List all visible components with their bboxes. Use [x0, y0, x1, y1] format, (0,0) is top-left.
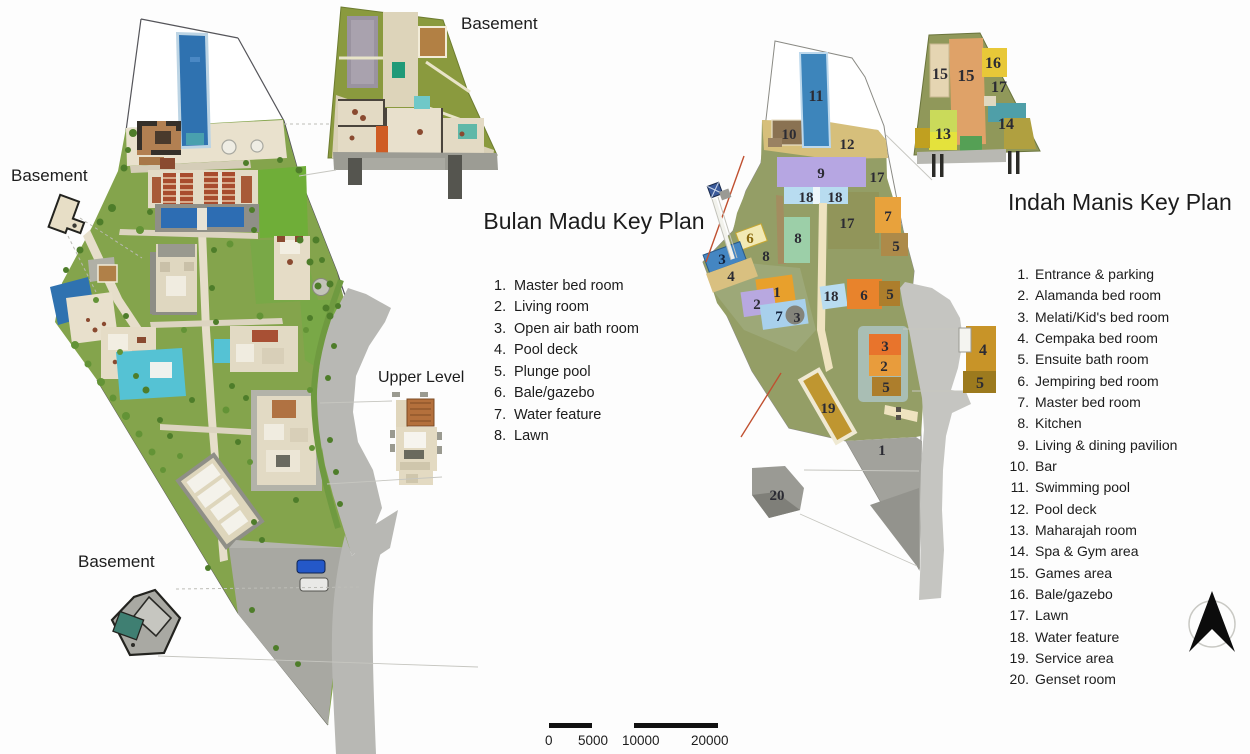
- svg-text:17: 17: [991, 79, 1007, 96]
- svg-text:4: 4: [979, 342, 987, 359]
- svg-text:Service area: Service area: [1035, 650, 1114, 666]
- svg-text:Alamanda bed room: Alamanda bed room: [1035, 287, 1161, 303]
- svg-text:2.: 2.: [494, 299, 506, 315]
- svg-text:11: 11: [808, 88, 823, 105]
- svg-text:Bar: Bar: [1035, 458, 1057, 474]
- svg-text:Bale/gazebo: Bale/gazebo: [1035, 586, 1113, 602]
- svg-text:10000: 10000: [622, 733, 660, 748]
- svg-text:7: 7: [884, 209, 892, 225]
- svg-text:16.: 16.: [1010, 586, 1029, 602]
- svg-text:Swimming pool: Swimming pool: [1035, 479, 1130, 495]
- svg-text:7: 7: [775, 309, 783, 325]
- svg-text:Pool deck: Pool deck: [1035, 501, 1097, 517]
- svg-text:Genset room: Genset room: [1035, 671, 1116, 687]
- svg-text:Lawn: Lawn: [1035, 607, 1068, 623]
- svg-text:1: 1: [878, 443, 886, 459]
- svg-text:13.: 13.: [1010, 522, 1029, 538]
- svg-text:Entrance & parking: Entrance & parking: [1035, 266, 1154, 282]
- svg-text:8.: 8.: [494, 428, 506, 444]
- svg-text:15: 15: [958, 66, 975, 85]
- svg-text:3: 3: [881, 339, 889, 355]
- svg-text:15: 15: [932, 66, 948, 83]
- svg-text:Melati/Kid's bed room: Melati/Kid's bed room: [1035, 309, 1169, 325]
- svg-text:Upper Level: Upper Level: [378, 369, 464, 386]
- svg-text:5: 5: [976, 375, 984, 392]
- svg-text:5: 5: [886, 287, 894, 303]
- svg-text:Games area: Games area: [1035, 565, 1112, 581]
- svg-text:18: 18: [824, 289, 839, 305]
- svg-text:5.: 5.: [494, 364, 506, 380]
- svg-text:5: 5: [892, 239, 900, 255]
- svg-text:10: 10: [782, 127, 797, 143]
- svg-text:Basement: Basement: [11, 166, 88, 185]
- svg-text:Bulan Madu Key Plan: Bulan Madu Key Plan: [483, 208, 704, 234]
- svg-text:Cempaka bed room: Cempaka bed room: [1035, 330, 1158, 346]
- svg-text:15.: 15.: [1010, 565, 1029, 581]
- svg-text:7.: 7.: [1017, 394, 1029, 410]
- svg-text:4.: 4.: [1017, 330, 1029, 346]
- svg-text:Maharajah room: Maharajah room: [1035, 522, 1137, 538]
- svg-text:Jempiring bed room: Jempiring bed room: [1035, 373, 1159, 389]
- svg-text:Master bed room: Master bed room: [1035, 394, 1141, 410]
- svg-text:20000: 20000: [691, 733, 729, 748]
- svg-text:Spa & Gym area: Spa & Gym area: [1035, 543, 1139, 559]
- svg-text:18: 18: [828, 190, 843, 206]
- svg-text:1.: 1.: [1017, 266, 1029, 282]
- svg-text:5: 5: [882, 380, 890, 396]
- svg-text:Living room: Living room: [514, 299, 589, 315]
- svg-text:19.: 19.: [1010, 650, 1029, 666]
- svg-text:6: 6: [860, 288, 868, 304]
- svg-text:Plunge pool: Plunge pool: [514, 364, 591, 380]
- svg-text:Water feature: Water feature: [514, 407, 601, 423]
- svg-text:Open air bath room: Open air bath room: [514, 321, 639, 337]
- svg-text:7.: 7.: [494, 407, 506, 423]
- svg-text:Living & dining pavilion: Living & dining pavilion: [1035, 437, 1177, 453]
- svg-text:Lawn: Lawn: [514, 428, 549, 444]
- svg-text:Basement: Basement: [461, 14, 538, 33]
- svg-text:1.: 1.: [494, 278, 506, 294]
- svg-text:14.: 14.: [1010, 543, 1029, 559]
- svg-text:20.: 20.: [1010, 671, 1029, 687]
- svg-text:Master bed room: Master bed room: [514, 278, 624, 294]
- svg-text:11.: 11.: [1011, 479, 1029, 495]
- svg-text:3.: 3.: [1017, 309, 1029, 325]
- svg-text:1: 1: [773, 285, 781, 301]
- svg-text:0: 0: [545, 733, 553, 748]
- svg-text:6.: 6.: [494, 385, 506, 401]
- svg-text:Kitchen: Kitchen: [1035, 415, 1082, 431]
- svg-text:18: 18: [799, 190, 814, 206]
- svg-text:2: 2: [880, 359, 888, 375]
- svg-text:12.: 12.: [1010, 501, 1029, 517]
- svg-text:17: 17: [870, 170, 886, 186]
- svg-text:9.: 9.: [1017, 437, 1029, 453]
- svg-text:Basement: Basement: [78, 552, 155, 571]
- svg-text:13: 13: [935, 126, 951, 143]
- svg-text:8: 8: [762, 249, 770, 265]
- svg-text:6: 6: [746, 231, 754, 247]
- svg-text:Water feature: Water feature: [1035, 629, 1120, 645]
- svg-text:4: 4: [727, 269, 735, 285]
- svg-text:3: 3: [718, 252, 726, 268]
- svg-text:Ensuite bath room: Ensuite bath room: [1035, 351, 1149, 367]
- svg-text:20: 20: [770, 488, 785, 504]
- svg-text:5000: 5000: [578, 733, 608, 748]
- svg-text:17: 17: [840, 216, 856, 232]
- svg-text:9: 9: [817, 166, 825, 182]
- svg-text:3.: 3.: [494, 321, 506, 337]
- svg-text:18.: 18.: [1010, 629, 1029, 645]
- svg-text:3: 3: [794, 311, 801, 326]
- svg-text:8: 8: [794, 231, 802, 247]
- svg-text:16: 16: [985, 55, 1001, 72]
- svg-text:2: 2: [753, 297, 761, 313]
- svg-text:Indah Manis Key Plan: Indah Manis Key Plan: [1008, 189, 1232, 215]
- svg-text:14: 14: [998, 116, 1014, 133]
- svg-text:5.: 5.: [1017, 351, 1029, 367]
- svg-text:10.: 10.: [1010, 458, 1029, 474]
- svg-text:8.: 8.: [1017, 415, 1029, 431]
- svg-text:12: 12: [840, 137, 855, 153]
- svg-text:Pool deck: Pool deck: [514, 342, 578, 358]
- svg-text:17.: 17.: [1010, 607, 1029, 623]
- svg-text:19: 19: [821, 401, 836, 417]
- svg-text:6.: 6.: [1017, 373, 1029, 389]
- svg-text:2.: 2.: [1017, 287, 1029, 303]
- svg-text:4.: 4.: [494, 342, 506, 358]
- svg-text:Bale/gazebo: Bale/gazebo: [514, 385, 595, 401]
